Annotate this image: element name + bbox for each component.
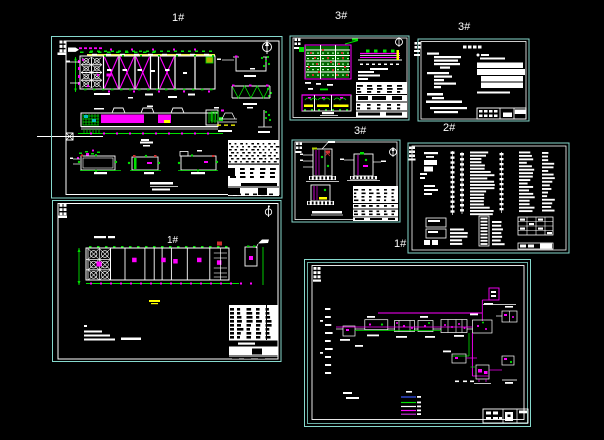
svg-text:1#: 1#: [172, 12, 185, 24]
svg-text:1#: 1#: [167, 235, 179, 246]
svg-text:2#: 2#: [443, 122, 456, 134]
svg-text:3#: 3#: [335, 10, 348, 22]
svg-text:1#: 1#: [394, 238, 407, 250]
svg-text:3#: 3#: [458, 21, 471, 33]
svg-text:3#: 3#: [354, 125, 367, 137]
